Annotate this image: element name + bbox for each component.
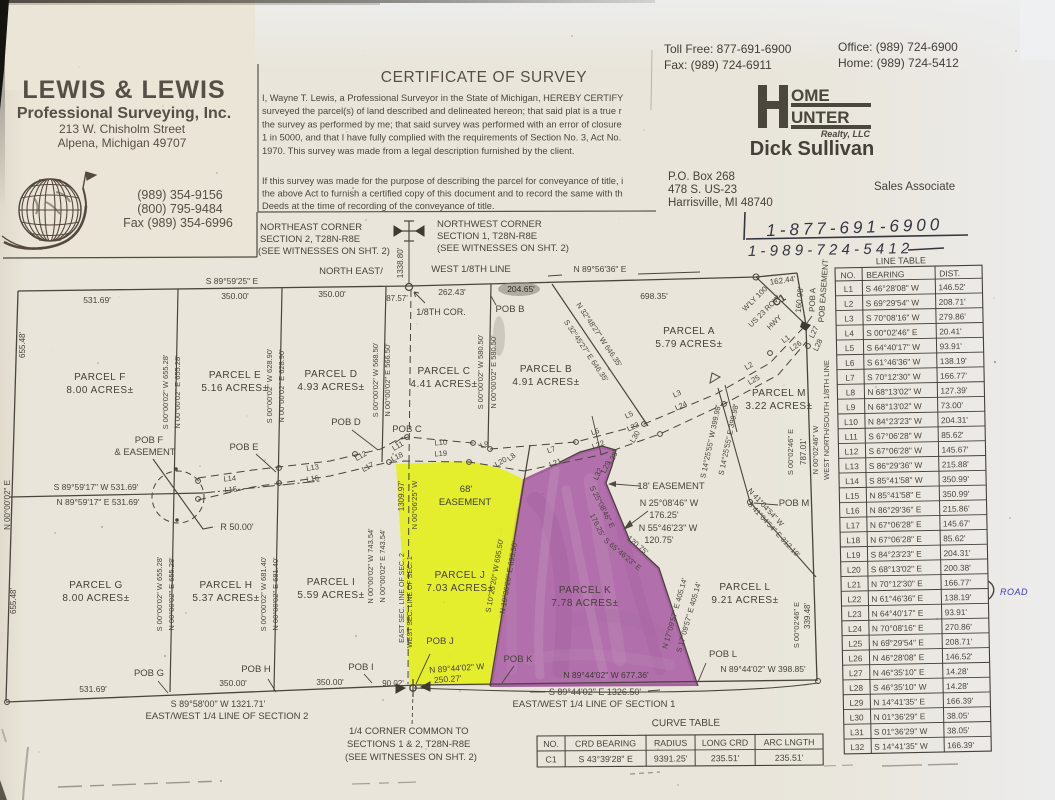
svg-text:N 46°28'08" E: N 46°28'08" E <box>872 652 924 663</box>
svg-text:L19: L19 <box>847 550 861 560</box>
svg-text:350.00': 350.00' <box>318 289 346 299</box>
svg-text:EASEMENT: EASEMENT <box>439 497 491 508</box>
svg-text:L23: L23 <box>848 609 862 619</box>
svg-text:L12: L12 <box>845 446 859 456</box>
svg-text:L21: L21 <box>847 579 861 589</box>
svg-text:S 64°40'17" W: S 64°40'17" W <box>866 342 920 353</box>
svg-text:S 00°00'02" W 568.50': S 00°00'02" W 568.50' <box>371 342 380 417</box>
svg-text:204.65': 204.65' <box>507 284 535 294</box>
svg-text:CURVE TABLE: CURVE TABLE <box>652 718 721 729</box>
svg-text:235.51': 235.51' <box>775 753 804 763</box>
svg-text:S 69°29'54" W: S 69°29'54" W <box>866 297 920 308</box>
svg-text:(800) 795-9484: (800) 795-9484 <box>137 202 223 216</box>
svg-text:350.99': 350.99' <box>942 489 970 500</box>
svg-text:146.52': 146.52' <box>945 651 973 662</box>
svg-text:L8: L8 <box>846 387 856 397</box>
svg-text:EAST/WEST 1/4 LINE OF SECTION: EAST/WEST 1/4 LINE OF SECTION 2 <box>146 711 309 722</box>
svg-text:WEST SEC. LINE OF SEC. 1: WEST SEC. LINE OF SEC. 1 <box>407 556 414 648</box>
svg-text:EAST SEC. LINE OF SEC. 2: EAST SEC. LINE OF SEC. 2 <box>399 553 406 643</box>
svg-text:L1: L1 <box>844 284 854 294</box>
svg-text:L25: L25 <box>848 638 862 648</box>
svg-text:215.86': 215.86' <box>943 503 971 514</box>
svg-text:If this survey was made for th: If this survey was made for the purpose … <box>262 176 623 186</box>
svg-text:Dick Sullivan: Dick Sullivan <box>750 138 875 160</box>
svg-text:73.00': 73.00' <box>941 400 964 410</box>
svg-text:L2: L2 <box>844 299 854 309</box>
svg-text:LONG CRD: LONG CRD <box>702 738 749 748</box>
svg-text:4.93 ACRES±: 4.93 ACRES± <box>297 382 364 393</box>
svg-text:215.88': 215.88' <box>942 459 970 470</box>
svg-text:N 84°23'23" W: N 84°23'23" W <box>868 416 922 427</box>
svg-text:L15: L15 <box>845 491 859 501</box>
svg-text:L30: L30 <box>850 712 864 722</box>
svg-text:S 14°41'35" W: S 14°41'35" W <box>874 741 928 752</box>
svg-text:CRD BEARING: CRD BEARING <box>575 738 636 748</box>
svg-text:LINE TABLE: LINE TABLE <box>876 255 926 266</box>
svg-text:RADIUS: RADIUS <box>654 738 687 748</box>
svg-text:PARCEL L: PARCEL L <box>719 582 770 593</box>
svg-text:I, Wayne T. Lewis, a Professio: I, Wayne T. Lewis, a Professional Survey… <box>262 93 623 103</box>
svg-text:(SEE WITNESSES ON SHT. 2): (SEE WITNESSES ON SHT. 2) <box>437 243 569 254</box>
svg-text:Home: (989) 724-5412: Home: (989) 724-5412 <box>838 56 959 70</box>
svg-text:WEST NORTH/SOUTH 1/8TH LINE: WEST NORTH/SOUTH 1/8TH LINE <box>822 360 831 480</box>
svg-text:N 70°12'30" E: N 70°12'30" E <box>871 578 923 589</box>
svg-text:L26: L26 <box>849 653 863 663</box>
svg-text:S 70°12'30" W: S 70°12'30" W <box>867 371 921 382</box>
svg-text:N 00°00'02" E 743.54': N 00°00'02" E 743.54' <box>378 529 387 603</box>
svg-text:PARCEL B: PARCEL B <box>520 364 572 375</box>
svg-text:1/4 CORNER COMMON TO: 1/4 CORNER COMMON TO <box>349 726 468 737</box>
svg-text:200.38': 200.38' <box>944 562 972 573</box>
svg-text:S 00°00'02" W 655.28': S 00°00'02" W 655.28' <box>155 556 164 631</box>
svg-text:NORTHEAST CORNER: NORTHEAST CORNER <box>260 222 362 233</box>
svg-text:478 S. US-23: 478 S. US-23 <box>668 184 737 196</box>
svg-text:350.00': 350.00' <box>219 678 247 688</box>
svg-text:DIST.: DIST. <box>939 268 960 278</box>
svg-text:N 89°56'36" E: N 89°56'36" E <box>574 264 627 274</box>
svg-text:PARCEL K: PARCEL K <box>559 585 611 596</box>
svg-text:N 01°36'29" E: N 01°36'29" E <box>874 711 926 722</box>
svg-text:UNTER: UNTER <box>791 108 850 127</box>
svg-text:38.05': 38.05' <box>947 725 970 735</box>
svg-text:N 00°00'02" E 655.28': N 00°00'02" E 655.28' <box>173 355 182 429</box>
svg-text:93.91': 93.91' <box>945 607 968 617</box>
svg-text:145.67': 145.67' <box>943 518 971 529</box>
svg-text:NORTHWEST CORNER: NORTHWEST CORNER <box>437 219 542 230</box>
svg-text:S 68°13'02" E: S 68°13'02" E <box>871 563 923 574</box>
svg-text:787.01': 787.01' <box>799 439 808 465</box>
svg-text:L5: L5 <box>845 343 855 353</box>
svg-text:N 00°00'02" E 628.90': N 00°00'02" E 628.90' <box>277 349 286 423</box>
svg-text:8.00 ACRES±: 8.00 ACRES± <box>62 593 129 604</box>
svg-text:Fax: (989) 724-6911: Fax: (989) 724-6911 <box>664 58 772 72</box>
svg-text:655.48': 655.48' <box>18 332 27 358</box>
svg-text:Alpena, Michigan 49707: Alpena, Michigan 49707 <box>58 136 187 150</box>
svg-text:S 00°00'02" W 628.90': S 00°00'02" W 628.90' <box>265 348 274 423</box>
svg-text:S 00°02'46" E: S 00°02'46" E <box>786 429 795 475</box>
svg-text:POB L: POB L <box>709 649 737 660</box>
svg-text:(989) 354-9156: (989) 354-9156 <box>137 188 223 202</box>
svg-text:S 00°00'02" W 681.40': S 00°00'02" W 681.40' <box>259 556 268 631</box>
svg-text:Sales Associate: Sales Associate <box>874 181 955 193</box>
svg-text:LEWIS & LEWIS: LEWIS & LEWIS <box>22 76 225 104</box>
svg-text:L10: L10 <box>844 417 858 427</box>
svg-text:68': 68' <box>460 484 473 495</box>
svg-text:S 00°02'46" E: S 00°02'46" E <box>866 327 918 338</box>
svg-text:127.39': 127.39' <box>940 385 968 396</box>
svg-text:POB J: POB J <box>426 636 454 647</box>
svg-text:L32: L32 <box>850 742 864 752</box>
svg-text:N 89°59'17" E 531.69': N 89°59'17" E 531.69' <box>57 497 140 507</box>
svg-text:166.77': 166.77' <box>940 370 968 381</box>
svg-text:1970. This survey was made fr: 1970. This survey was made from a legal … <box>262 146 574 156</box>
svg-text:S 85°41'58" W: S 85°41'58" W <box>869 475 923 486</box>
svg-text:N 86°29'36" E: N 86°29'36" E <box>870 504 922 515</box>
svg-text:166.77': 166.77' <box>944 577 972 588</box>
svg-text:L27: L27 <box>849 668 863 678</box>
svg-text:235.51': 235.51' <box>711 753 740 763</box>
svg-text:PARCEL H: PARCEL H <box>200 580 253 591</box>
svg-text:S 46°35'10" W: S 46°35'10" W <box>873 682 927 693</box>
svg-text:PARCEL F: PARCEL F <box>74 372 126 383</box>
svg-text:POB I: POB I <box>348 662 373 673</box>
svg-text:N 67°06'28" E: N 67°06'28" E <box>870 534 922 545</box>
svg-text:270.86': 270.86' <box>945 622 973 633</box>
svg-text:S 89°58'00" W 1321.71': S 89°58'00" W 1321.71' <box>171 699 266 709</box>
svg-text:14.28': 14.28' <box>946 666 969 676</box>
svg-text:N 00°00'02" E 580.50': N 00°00'02" E 580.50' <box>489 335 498 409</box>
svg-text:339.48': 339.48' <box>803 603 812 629</box>
svg-text:L7: L7 <box>845 373 855 383</box>
svg-text:9.21 ACRES±: 9.21 ACRES± <box>711 595 778 606</box>
svg-text:N 14°41'35" E: N 14°41'35" E <box>873 696 925 707</box>
svg-text:350.00': 350.00' <box>316 677 344 687</box>
svg-text:PARCEL M: PARCEL M <box>752 388 806 399</box>
svg-text:N 67°06'28" E: N 67°06'28" E <box>870 519 922 530</box>
svg-text:4.41 ACRES±: 4.41 ACRES± <box>410 379 477 390</box>
svg-text:PARCEL I: PARCEL I <box>307 577 355 588</box>
svg-text:SECTION 2, T28N-R8E: SECTION 2, T28N-R8E <box>260 234 360 245</box>
svg-text:1 in 5000, and that I have ful: 1 in 5000, and that I have fully complie… <box>262 133 621 143</box>
svg-text:250.27': 250.27' <box>434 673 463 685</box>
svg-text:166.39': 166.39' <box>947 740 975 751</box>
svg-text:3.22 ACRES±: 3.22 ACRES± <box>745 401 812 412</box>
svg-text:N 25°08'46" W: N 25°08'46" W <box>640 498 699 508</box>
svg-text:S 00°02'46" E: S 00°02'46" E <box>792 602 801 648</box>
svg-text:L24: L24 <box>848 624 862 634</box>
svg-text:38.05': 38.05' <box>947 710 970 720</box>
svg-text:(SEE WITNESSES ON SHT. 2): (SEE WITNESSES ON SHT. 2) <box>258 246 390 257</box>
svg-text:87.57': 87.57' <box>386 294 408 303</box>
svg-text:N 55°46'23" W: N 55°46'23" W <box>639 523 698 533</box>
svg-text:S 61°46'36" W: S 61°46'36" W <box>867 356 921 367</box>
svg-text:85.62': 85.62' <box>941 430 964 440</box>
svg-text:L4: L4 <box>845 328 855 338</box>
svg-text:N 68°13'02" W: N 68°13'02" W <box>868 401 922 412</box>
svg-text:S 67°06'28" W: S 67°06'28" W <box>868 445 922 456</box>
svg-text:L14: L14 <box>223 473 236 483</box>
svg-text:C1: C1 <box>546 754 557 764</box>
svg-text:N 00°00'02" E 681.40': N 00°00'02" E 681.40' <box>271 557 280 631</box>
svg-text:350.00': 350.00' <box>221 291 249 301</box>
svg-text:85.62': 85.62' <box>943 533 966 543</box>
svg-text:L22: L22 <box>847 594 861 604</box>
svg-text:262.43': 262.43' <box>438 287 466 297</box>
svg-text:L13: L13 <box>845 461 859 471</box>
svg-text:S 89°44'02" E 1326.50': S 89°44'02" E 1326.50' <box>549 687 642 697</box>
svg-text:L13: L13 <box>306 462 320 473</box>
svg-text:7.03 ACRES±: 7.03 ACRES± <box>426 583 493 594</box>
svg-text:Fax (989) 354-6996: Fax (989) 354-6996 <box>123 216 233 230</box>
svg-text:204.31': 204.31' <box>941 415 969 426</box>
svg-text:N 70°08'16" E: N 70°08'16" E <box>872 622 924 633</box>
svg-text:L31: L31 <box>850 727 864 737</box>
svg-text:698.35': 698.35' <box>640 291 668 301</box>
svg-text:208.71': 208.71' <box>945 636 973 647</box>
svg-text:& EASEMENT: & EASEMENT <box>114 447 175 458</box>
svg-text:R 50.00': R 50.00' <box>220 522 254 532</box>
svg-text:N 89°44'02" W 398.85': N 89°44'02" W 398.85' <box>720 664 806 674</box>
svg-text:the survey as performed by me;: the survey as performed by me; that said… <box>262 119 622 129</box>
svg-text:5.16 ACRES±: 5.16 ACRES± <box>201 383 268 394</box>
svg-text:surveyed the parcel(s) of land: surveyed the parcel(s) of land described… <box>262 106 622 116</box>
svg-text:1/8TH COR.: 1/8TH COR. <box>416 307 466 317</box>
svg-text:Deeds at the time of recording: Deeds at the time of recording of the co… <box>262 201 495 211</box>
svg-text:S 00°00'02" W 580.50': S 00°00'02" W 580.50' <box>476 334 485 409</box>
svg-text:PARCEL G: PARCEL G <box>69 580 122 591</box>
svg-text:5.37 ACRES±: 5.37 ACRES± <box>192 593 259 604</box>
svg-text:S 67°06'28" W: S 67°06'28" W <box>868 430 922 441</box>
svg-text:NO.: NO. <box>543 739 559 749</box>
svg-text:Harrisville, MI 48740: Harrisville, MI 48740 <box>668 197 773 209</box>
svg-text:S 01°36'29" W: S 01°36'29" W <box>874 726 928 737</box>
svg-text:L17: L17 <box>846 520 860 530</box>
svg-text:PARCEL C: PARCEL C <box>418 366 471 377</box>
svg-text:145.67': 145.67' <box>941 444 969 455</box>
svg-text:POB D: POB D <box>331 417 361 428</box>
svg-text:N 46°35'10" E: N 46°35'10" E <box>873 667 925 678</box>
svg-text:4.91 ACRES±: 4.91 ACRES± <box>512 377 579 388</box>
svg-text:L14: L14 <box>845 476 859 486</box>
svg-text:Toll Free: 877-691-6900: Toll Free: 877-691-6900 <box>664 42 792 56</box>
svg-text:93.91': 93.91' <box>939 341 962 351</box>
svg-text:L18: L18 <box>846 535 860 545</box>
svg-text:S 46°28'08" W: S 46°28'08" W <box>865 283 919 294</box>
svg-text:POB E: POB E <box>229 442 258 453</box>
svg-text:L6: L6 <box>845 358 855 368</box>
svg-text:POB F: POB F <box>135 435 164 446</box>
svg-text:5.79 ACRES±: 5.79 ACRES± <box>655 339 722 350</box>
svg-text:ARC LNGTH: ARC LNGTH <box>764 737 815 747</box>
svg-text:OME: OME <box>791 86 830 105</box>
svg-text:9391.25': 9391.25' <box>654 753 688 763</box>
svg-text:1309.97': 1309.97' <box>397 480 406 511</box>
svg-text:N 89°44'02" W 677.36': N 89°44'02" W 677.36' <box>563 670 649 680</box>
svg-text:S 43°39'28" E: S 43°39'28" E <box>578 754 632 764</box>
svg-text:POB M: POB M <box>779 498 810 509</box>
svg-text:P.O. Box 268: P.O. Box 268 <box>668 171 735 183</box>
svg-text:146.52': 146.52' <box>938 282 966 293</box>
svg-text:L3: L3 <box>844 313 854 323</box>
svg-text:PARCEL E: PARCEL E <box>209 370 261 381</box>
svg-text:208.71': 208.71' <box>939 296 967 307</box>
svg-text:14.28': 14.28' <box>946 681 969 691</box>
svg-text:5.59 ACRES±: 5.59 ACRES± <box>297 590 364 601</box>
svg-text:PARCEL A: PARCEL A <box>663 326 715 337</box>
svg-text:POB H: POB H <box>241 664 271 675</box>
svg-text:N 61°46'36" E: N 61°46'36" E <box>871 593 923 604</box>
svg-text:138.19': 138.19' <box>944 592 972 603</box>
svg-text:1338.80': 1338.80' <box>396 247 405 278</box>
svg-text:20.41': 20.41' <box>939 326 962 336</box>
svg-text:213 W. Chisholm Street: 213 W. Chisholm Street <box>59 122 186 136</box>
svg-text:166.39': 166.39' <box>946 695 974 706</box>
svg-text:S 70°08'16" W: S 70°08'16" W <box>866 312 920 323</box>
svg-text:L29: L29 <box>849 698 863 708</box>
svg-text:N 00°00'02" E 566.50': N 00°00'02" E 566.50' <box>383 343 392 417</box>
svg-text:N 00°06'25" W: N 00°06'25" W <box>410 480 419 530</box>
svg-text:BEARING: BEARING <box>866 269 904 280</box>
svg-text:138.19': 138.19' <box>940 356 968 367</box>
svg-text:S 89°59'25" E: S 89°59'25" E <box>206 276 259 286</box>
svg-text:EAST/WEST 1/4 LINE OF SECTION: EAST/WEST 1/4 LINE OF SECTION 1 <box>513 699 676 710</box>
svg-text:L16: L16 <box>846 505 860 515</box>
svg-text:ROAD: ROAD <box>1000 587 1028 597</box>
svg-text:N 64°40'17" E: N 64°40'17" E <box>872 608 924 619</box>
svg-text:L16: L16 <box>306 473 320 484</box>
svg-text:L15: L15 <box>224 484 237 494</box>
svg-text:POB C: POB C <box>392 424 422 435</box>
svg-text:NORTH EAST/: NORTH EAST/ <box>319 266 383 277</box>
svg-text:L20: L20 <box>847 565 861 575</box>
svg-text:POB A: POB A <box>808 287 818 312</box>
svg-text:18' EASEMENT: 18' EASEMENT <box>637 481 704 492</box>
svg-text:350.99': 350.99' <box>942 474 970 485</box>
svg-text:L28: L28 <box>849 683 863 693</box>
svg-text:531.69': 531.69' <box>79 684 107 694</box>
svg-text:N 00°00'02" E 655.28': N 00°00'02" E 655.28' <box>167 557 176 631</box>
svg-text:POB K: POB K <box>503 654 533 665</box>
svg-text:N 85°41'58" E: N 85°41'58" E <box>869 490 921 501</box>
svg-text:the above Act to furnish a cer: the above Act to furnish a certified cop… <box>262 189 623 199</box>
svg-text:PARCEL D: PARCEL D <box>305 369 358 380</box>
svg-text:176.25': 176.25' <box>649 510 679 520</box>
svg-text:SECTION 1, T28N-R8E: SECTION 1, T28N-R8E <box>437 231 537 242</box>
svg-text:(SEE WITNESSES ON SHT. 2): (SEE WITNESSES ON SHT. 2) <box>345 752 477 763</box>
svg-text:POB B: POB B <box>495 304 524 315</box>
svg-text:8.00 ACRES±: 8.00 ACRES± <box>66 385 133 396</box>
svg-text:L9: L9 <box>846 402 856 412</box>
svg-text:S 89°59'17" W 531.69': S 89°59'17" W 531.69' <box>54 482 139 492</box>
svg-text:L11: L11 <box>845 432 859 442</box>
svg-text:204.31': 204.31' <box>943 548 971 559</box>
svg-text:120.75': 120.75' <box>644 535 674 545</box>
svg-text:N 00°02'46" W: N 00°02'46" W <box>811 425 820 475</box>
svg-text:279.86': 279.86' <box>939 311 967 322</box>
svg-text:655.48': 655.48' <box>9 588 18 614</box>
svg-text:WEST 1/8TH LINE: WEST 1/8TH LINE <box>431 264 511 275</box>
svg-text:N 69°29'54" E: N 69°29'54" E <box>872 637 924 648</box>
svg-text:L19: L19 <box>434 448 447 458</box>
svg-text:CERTIFICATE OF SURVEY: CERTIFICATE OF SURVEY <box>381 69 587 86</box>
svg-text:N 00°00'02" W 743.54': N 00°00'02" W 743.54' <box>366 528 375 604</box>
svg-text:Professional Surveying, Inc.: Professional Surveying, Inc. <box>17 105 231 122</box>
svg-text:N 00°00'02" E: N 00°00'02" E <box>3 480 12 530</box>
svg-text:POB G: POB G <box>134 668 164 679</box>
svg-text:7.78 ACRES±: 7.78 ACRES± <box>551 598 618 609</box>
svg-text:531.69': 531.69' <box>83 295 111 305</box>
svg-text:L10: L10 <box>434 437 447 447</box>
svg-text:Office: (989) 724-6900: Office: (989) 724-6900 <box>838 40 958 54</box>
svg-text:NO.: NO. <box>841 270 856 280</box>
svg-text:S 84°23'23" E: S 84°23'23" E <box>870 549 922 560</box>
svg-text:SECTIONS 1 & 2, T28N-R8E: SECTIONS 1 & 2, T28N-R8E <box>347 739 470 750</box>
svg-text:S 86°29'36" W: S 86°29'36" W <box>869 460 923 471</box>
svg-text:PARCEL J: PARCEL J <box>435 570 486 581</box>
svg-text:S 00°00'02" W 655.28': S 00°00'02" W 655.28' <box>161 354 170 429</box>
